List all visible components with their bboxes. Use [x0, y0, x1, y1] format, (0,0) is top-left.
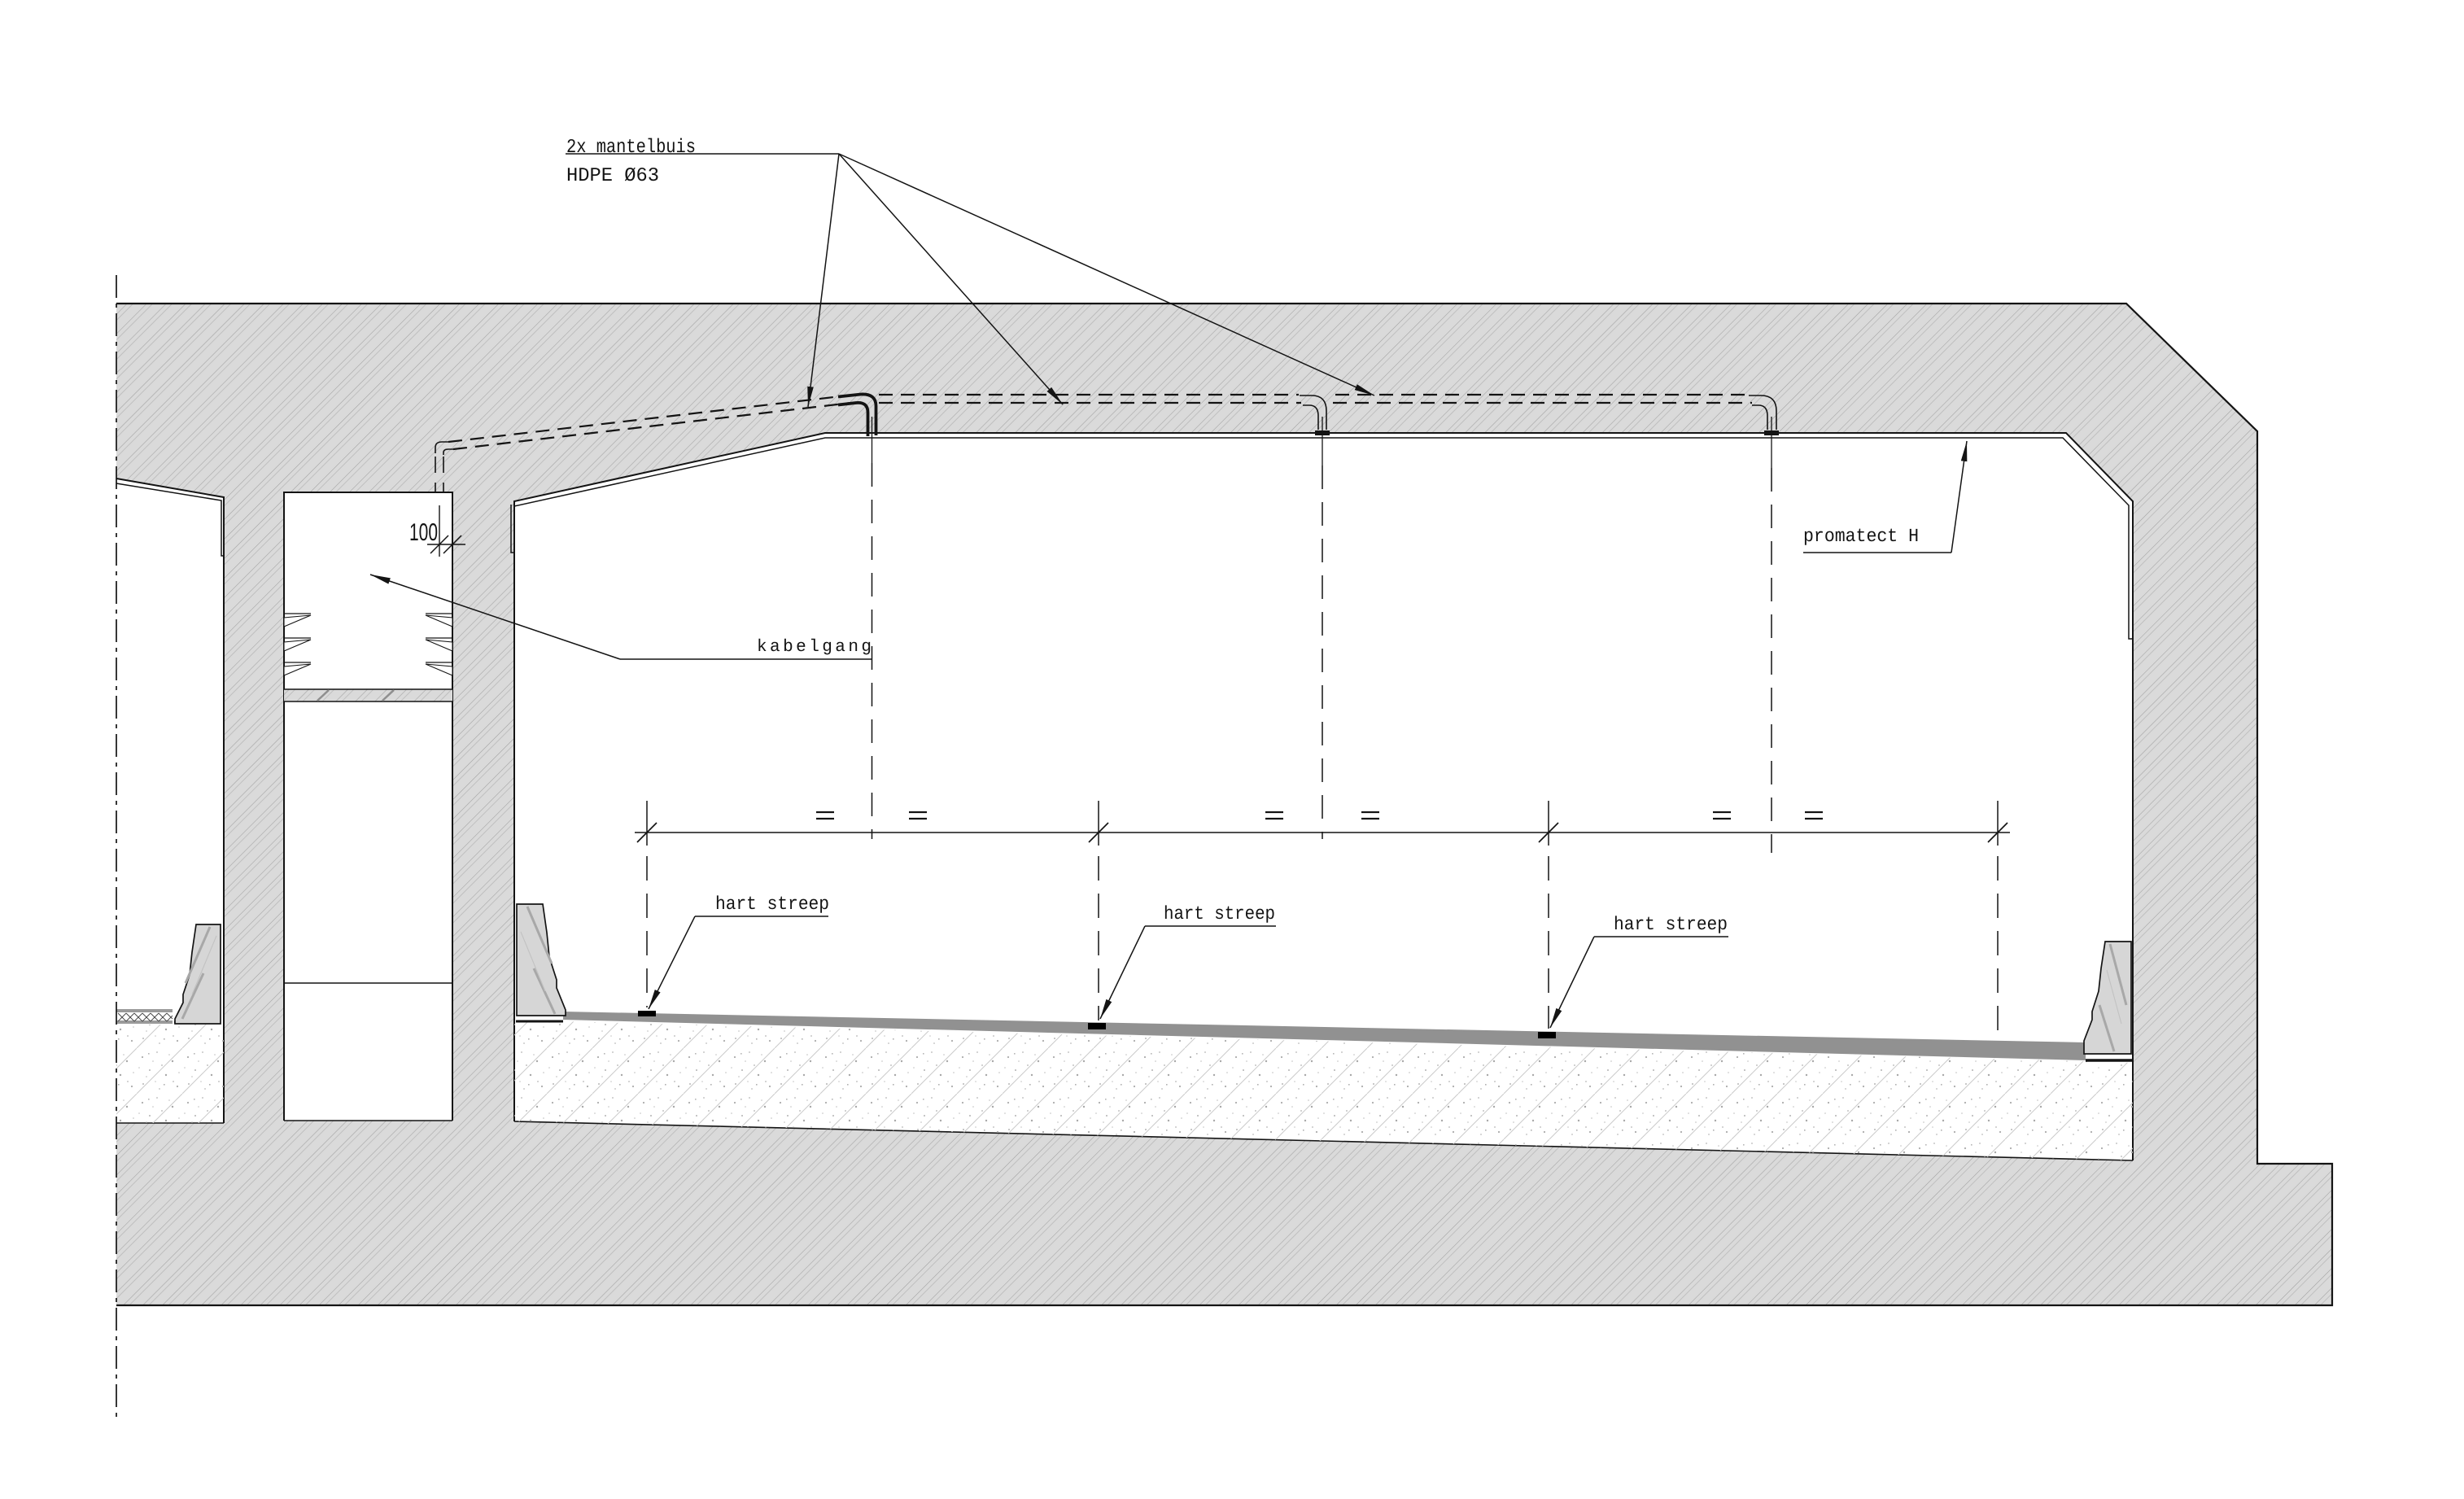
svg-text:2x mantelbuis: 2x mantelbuis: [566, 137, 696, 159]
svg-text:hart streep: hart streep: [1614, 914, 1728, 935]
svg-text:hart streep: hart streep: [1164, 903, 1275, 924]
svg-text:hart streep: hart streep: [715, 894, 829, 915]
svg-text:HDPE Ø63: HDPE Ø63: [566, 165, 659, 187]
svg-text:promatect H: promatect H: [1803, 526, 1919, 547]
svg-text:100: 100: [409, 519, 438, 546]
svg-text:kabelgang: kabelgang: [757, 638, 872, 657]
